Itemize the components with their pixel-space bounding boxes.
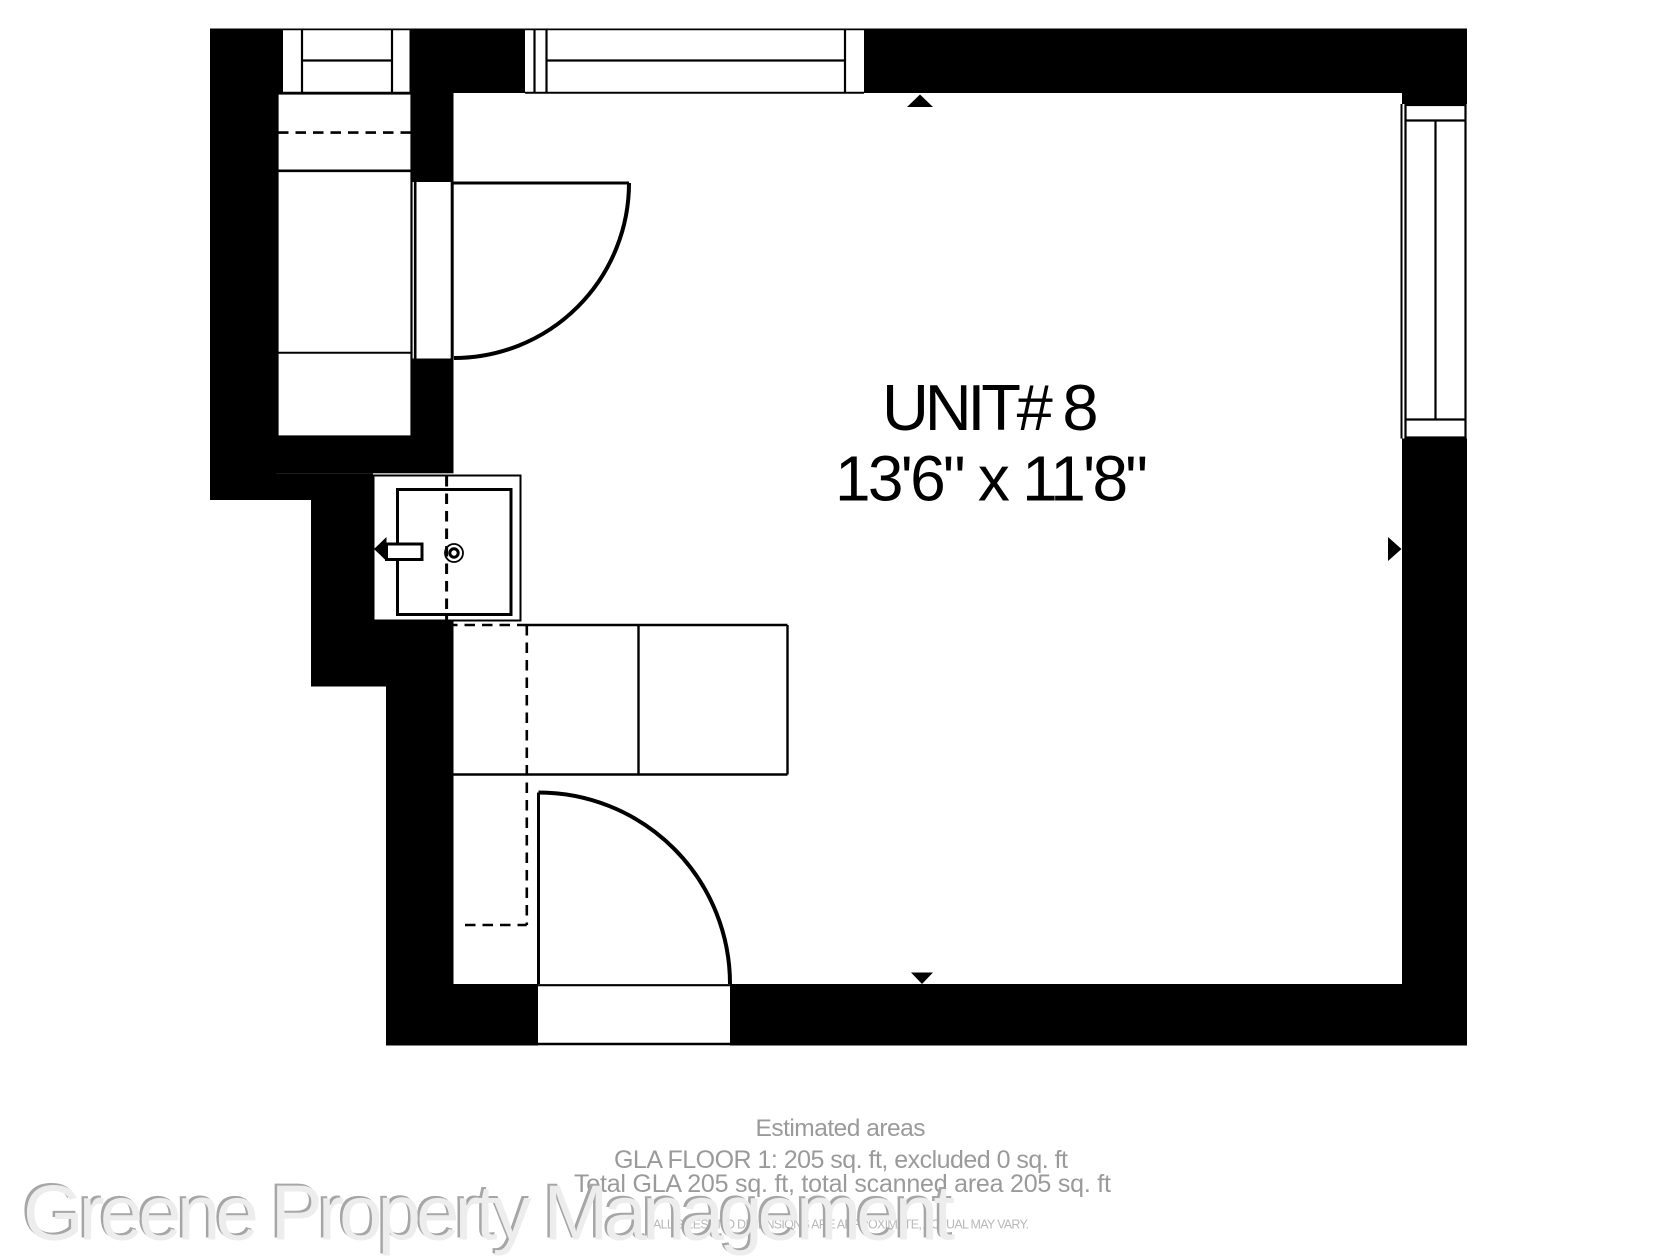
svg-text:Greene Property Management: Greene Property Management: [23, 1169, 955, 1257]
svg-text:UNIT# 8: UNIT# 8: [882, 371, 1099, 444]
svg-text:13'6" x 11'8": 13'6" x 11'8": [835, 442, 1148, 514]
svg-text:Estimated areas: Estimated areas: [756, 1115, 926, 1142]
